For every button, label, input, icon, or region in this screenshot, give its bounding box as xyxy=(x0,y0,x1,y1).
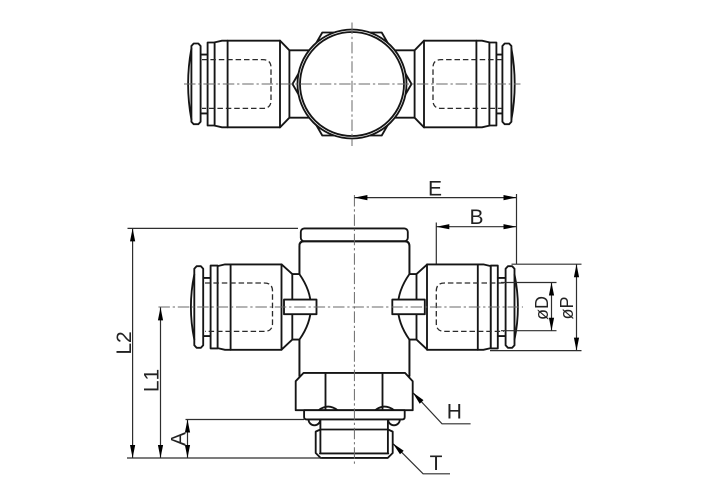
svg-text:L2: L2 xyxy=(113,331,136,354)
svg-text:E: E xyxy=(428,178,442,201)
svg-text:L1: L1 xyxy=(141,369,164,392)
svg-text:øP: øP xyxy=(557,296,577,319)
svg-text:øD: øD xyxy=(532,296,552,320)
svg-text:T: T xyxy=(430,452,443,475)
svg-text:B: B xyxy=(469,206,483,229)
svg-text:H: H xyxy=(447,401,462,424)
svg-text:A: A xyxy=(168,432,191,446)
